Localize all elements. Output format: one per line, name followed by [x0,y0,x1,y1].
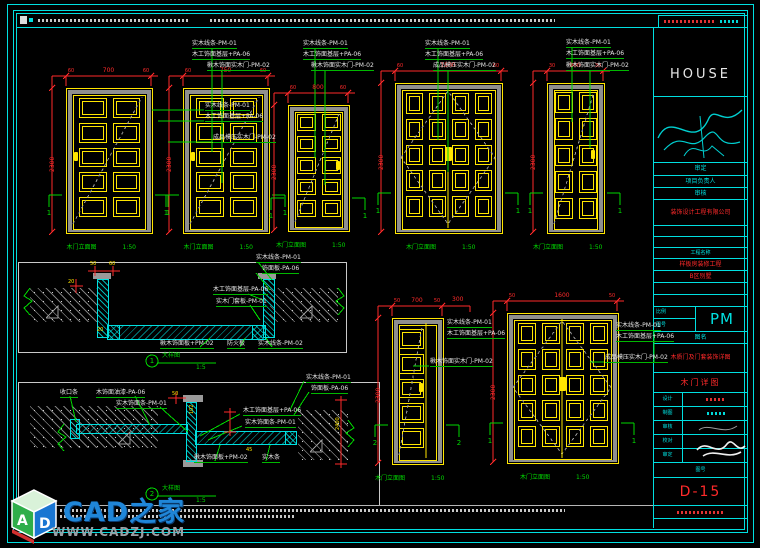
annotation-label: 50 [90,262,96,267]
svg-text:A: A [17,513,28,529]
door-panel [399,428,424,448]
watermark-url: WWW.CADZJ.COM [52,525,185,539]
tb-footer-text [677,511,725,514]
annotation-label: 1:50 [462,245,475,251]
annotation-label: 2300 [491,384,497,399]
detail-leaf [76,424,188,434]
door-panel [406,196,423,217]
door-handle [191,152,195,161]
annotation-label: 成品模压实木门-PM-02 [433,63,496,71]
door-panel [79,197,107,217]
top-bar-right-text2 [720,20,740,23]
annotation-label: 2400 [336,417,341,430]
door-panel [518,375,536,396]
top-bar-right-text [664,20,716,23]
detail-leaf [195,431,297,445]
door-panel [475,93,492,114]
door-panel [113,123,141,143]
annotation-label: 1 [283,210,287,217]
annotation-label: 45 [246,448,252,453]
door-panel [452,170,469,191]
door-panel [79,148,107,168]
annotation-label: 实木线条-PM-01 [303,41,348,49]
annotation-label: 1 [164,210,168,217]
door-panel [452,93,469,114]
door-panel [399,329,424,349]
door-panel [566,375,584,396]
annotation-label: 实木条 [262,455,280,463]
door-panel [297,114,316,131]
annotation-label: 2300 [376,387,382,402]
annotation-label: 收口条 [60,390,78,398]
signature-area [653,96,748,162]
tb-row-approved: 审定 [694,166,706,172]
tb-sheet-number: D-15 [680,485,722,499]
door-panel [297,136,316,153]
door-panel [406,93,423,114]
tb-sheetno-label: 图号 [695,468,705,473]
annotation-label: 实木线条-PM-01 [306,375,351,383]
annotation-label: 50 [172,392,178,397]
watermark: A D CAD之家 WWW.CADZJ.COM [6,488,236,548]
annotation-label: 2300 [50,157,56,172]
annotation-label: 30 [549,64,555,69]
tb-sig-draft-value [707,412,725,415]
door-panel [475,119,492,140]
annotation-label: 2 [457,440,461,447]
top-bar-divider-line [16,27,743,28]
annotation-label: 1 [47,210,51,217]
annotation-label: 1:50 [123,245,136,251]
door-panel [230,197,258,217]
annotation-label: 楸木饰面实木门-PM-02 [430,359,493,367]
door-panel [518,400,536,421]
annotation-label: 1600 [554,293,569,299]
annotation-label: 木门立面图 [183,245,213,251]
annotation-label: 饰面板-PA-06 [262,266,299,274]
annotation-label: 60 [143,69,149,74]
door-handle [74,152,78,161]
door-handle [336,161,340,170]
door-panel [579,198,597,219]
door-panel-grid [79,98,140,217]
annotation-label: 20 [97,328,103,333]
annotation-label: 木工饰面基层+PA-06 [205,114,263,122]
tb-sig-proof: 校对 [662,439,672,444]
door-panel [590,323,608,344]
annotation-label: 楸木饰面板+PM-02 [160,341,214,349]
door-panel [542,400,560,421]
door-panel-grid [297,114,341,217]
annotation-label: 50 [509,294,515,299]
annotation-label: 50 [394,299,400,304]
signer-scribble [693,420,747,464]
annotation-label: 实木线条-PM-01 [205,103,250,111]
detail-cy [70,419,80,439]
annotation-label: 实木线条-PM-01 [425,41,470,49]
door-panel [406,119,423,140]
annotation-label: 饰面板-PA-06 [311,386,348,394]
annotation-label: 防火板 [227,341,245,349]
door-panel [322,179,341,196]
door-panel [566,400,584,421]
door-panel [566,323,584,344]
tb-sheet-title-long: 木质门及门套装饰详图 [670,355,730,361]
annotation-label: 1 [363,213,367,220]
annotation-label: 1:50 [431,476,444,482]
annotation-label: 实木饰面条-PM-01 [245,420,296,428]
annotation-label: 楸木饰面板+PM-02 [194,455,248,463]
annotation-label: 木工饰面基层+PA-06 [447,331,505,339]
door-panel [406,170,423,191]
annotation-label: 木门立面图 [520,475,550,481]
door-panel [542,426,560,447]
annotation-label: 2300 [167,157,173,172]
annotation-label: 1 [269,213,273,220]
annotation-label: 木门立面图 [66,245,96,251]
annotation-label: 木工饰面基层+PA-06 [566,51,624,59]
top-bar-logo-dot-icon [29,18,33,22]
annotation-label: 成品模压实木门-PM-02 [605,355,668,363]
door-panel [113,197,141,217]
detail-cap [183,395,203,402]
door-panel [429,93,446,114]
door-elevation-6 [392,318,444,465]
annotation-label: 楸木饰面实木门-PM-02 [207,63,270,71]
door-panel [475,145,492,166]
door-panel [566,426,584,447]
tb-sig-design: 设计 [662,397,672,402]
door-panel [452,196,469,217]
annotation-label: 实木门套板-PM-01 [216,299,267,307]
door-panel [579,171,597,192]
door-panel [590,400,608,421]
tb-project-name2: B区别墅 [689,274,711,280]
annotation-label: 实木饰面条-PM-01 [116,401,167,409]
tb-sig-check: 审核 [662,425,672,430]
tb-sig-draft: 制图 [662,411,672,416]
door-elevation-5 [547,83,605,234]
detail-cy [285,431,297,445]
annotation-label: 1 [488,438,492,445]
annotation-label: 大样图 [162,353,180,359]
annotation-label: 木工饰面基层+PA-06 [243,408,301,416]
door-panel [542,375,560,396]
door-panel [429,196,446,217]
annotation-label: 1 [618,208,622,215]
annotation-label: 实木线条-PM-01 [566,40,611,48]
door-panel [452,119,469,140]
house-logo: HOUSE [670,68,731,81]
tb-row-checked: 审核 [694,191,706,197]
annotation-label: 2 [373,440,377,447]
door-handle [419,383,423,392]
annotation-label: 50 [434,299,440,304]
tb-company: 装饰设计工程有限公司 [670,210,730,216]
door-panel [579,118,597,139]
door-panel [113,148,141,168]
door-panel [399,403,424,423]
door-panel [555,92,573,113]
door-panel [230,172,258,192]
detail-cy [252,325,266,340]
annotation-label: 102 [190,404,195,414]
annotation-label: 实木线条-PM-01 [192,41,237,49]
annotation-label: 60 [109,262,115,267]
door-handle [445,147,452,161]
tb-row-project-lead: 项目负责人 [685,179,715,185]
annotation-label: 2300 [272,164,278,179]
door-panel [429,170,446,191]
door-panel [542,323,560,344]
annotation-label: 成品模压实木门-PM-02 [213,135,276,143]
signature-scribble [654,98,747,162]
annotation-label: 60 [185,69,191,74]
annotation-label: 木工饰面基层+PA-06 [303,52,361,60]
annotation-label: 木饰面油漆-PA-06 [96,390,145,398]
door-panel [429,145,446,166]
door-elevation-1 [66,88,153,234]
annotation-label: 700 [411,298,422,304]
annotation-label: 木工饰面基层+PA-06 [425,52,483,60]
tb-pm-code: PM [710,312,734,327]
detail-wall [270,288,338,322]
annotation-label: 实木线条-PM-01 [616,323,661,331]
door-panel [590,375,608,396]
door-panel [555,171,573,192]
door-panel [297,179,316,196]
door-panel [579,92,597,113]
door-panel [79,123,107,143]
annotation-label: 实木线条-PM-02 [258,341,303,349]
door-panel [113,172,141,192]
annotation-label: 1 [150,358,154,365]
annotation-label: 1:50 [240,245,253,251]
top-bar-notice-left [38,19,188,22]
annotation-label: 楸木饰面实木门-PM-02 [566,63,629,71]
door-elevation-7 [507,313,619,464]
annotation-label: 2300 [379,154,385,169]
door-panel [452,145,469,166]
tb-sig-design-value [706,398,726,401]
top-bar-notice-center [210,19,555,22]
tb-project-label: 工程名称 [690,251,710,256]
annotation-label: 木门立面图 [406,245,436,251]
tb-sheet-title: 木门详图 [681,379,721,387]
door-handle [559,377,566,391]
cad-drawing-sheet: HOUSE 审定 项目负责人 审核 装饰设计工程有限公司 工程名称 样板房装修工… [0,0,760,548]
annotation-label: 木门立面图 [276,243,306,249]
watermark-brand: CAD之家 [63,490,185,529]
annotation-label: 700 [103,68,114,74]
annotation-label: 50 [609,294,615,299]
door-panel [590,426,608,447]
svg-text:D: D [39,516,51,532]
annotation-label: 1:50 [589,245,602,251]
annotation-label: 木工饰面基层+PA-06 [192,52,250,60]
annotation-label: 1 [632,438,636,445]
detail-leaf [107,325,266,340]
door-panel [79,98,107,118]
tb-scale-label: 比例 [656,310,666,315]
annotation-label: 1:50 [576,475,589,481]
detail-wall [30,288,98,322]
top-bar-logo-icon [20,16,27,24]
door-panel [322,200,341,217]
detail-cy [107,325,120,340]
annotation-label: 1 [528,208,532,215]
door-panel [555,118,573,139]
door-panel [542,349,560,370]
door-panel [322,136,341,153]
door-panel [518,323,536,344]
door-panel [566,349,584,370]
annotation-label: 60 [290,86,296,91]
annotation-label: 60 [68,69,74,74]
annotation-label: 木门立面图 [375,476,405,482]
annotation-label: 木工饰面基层-PA-06 [213,287,268,295]
door-panel [196,172,224,192]
annotation-label: 实木线条-PM-01 [256,255,301,263]
annotation-label: 60 [397,64,403,69]
door-panel [518,349,536,370]
door-handle [591,150,595,159]
annotation-label: 1:5 [196,365,206,371]
door-panel [406,145,423,166]
door-panel [113,98,141,118]
door-panel [196,197,224,217]
door-panel [555,198,573,219]
detail-cap [93,273,111,279]
annotation-label: 楸木饰面实木门-PM-02 [311,63,374,71]
door-panel [79,172,107,192]
annotation-label: 木工饰面基层+PA-06 [616,334,674,342]
door-panel [555,145,573,166]
annotation-label: 木门立面图 [533,245,563,251]
door-elevation-3 [288,105,350,232]
door-elevation-4 [395,83,503,234]
door-panel [429,119,446,140]
annotation-label: 1 [376,208,380,215]
door-panel [399,354,424,374]
annotation-label: 1:50 [332,243,345,249]
annotation-label: 300 [452,297,463,303]
door-panel [297,157,316,174]
door-panel [475,170,492,191]
door-panel [475,196,492,217]
door-panel [518,426,536,447]
annotation-label: 800 [312,85,323,91]
tb-sig-approve: 审定 [662,453,672,458]
tb-sheet-name-label: 图名 [694,335,706,341]
door-panel [297,200,316,217]
annotation-label: 2300 [531,154,537,169]
tb-project-name1: 样板房装修工程 [679,262,721,268]
door-panel [322,114,341,131]
annotation-label: 实木线条-PM-01 [447,320,492,328]
door-panel [196,148,224,168]
door-panel [230,148,258,168]
annotation-label: 60 [340,86,346,91]
annotation-label: 20 [68,280,74,285]
annotation-label: 1 [516,208,520,215]
